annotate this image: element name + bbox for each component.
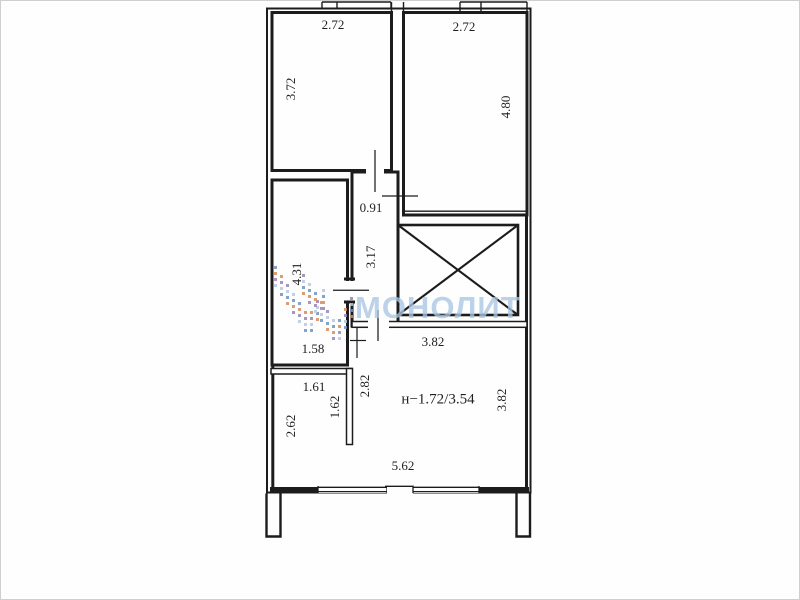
dimension-label: 1.62 (327, 396, 342, 419)
top-window-lines (322, 2, 527, 12)
dimension-label: 3.82 (494, 389, 509, 412)
dimension-label: 4.31 (289, 263, 304, 286)
balcony-walls (267, 494, 531, 537)
dimension-label: 2.62 (283, 415, 298, 438)
dimension-label: 3.82 (422, 334, 445, 349)
shaft-box (398, 225, 518, 315)
dimension-label: 0.91 (360, 200, 383, 215)
dimension-label: н−1.72/3.54 (401, 391, 475, 407)
dimension-label: 4.80 (498, 96, 513, 119)
dimension-label: 1.61 (303, 379, 326, 394)
dimension-label: 1.58 (302, 341, 325, 356)
dimension-label: 3.72 (283, 78, 298, 101)
dimension-label: 2.82 (357, 375, 372, 398)
dimension-label: 3.17 (363, 245, 378, 268)
bottom-wall-windows (270, 485, 529, 494)
floor-plan-drawing: 2.723.722.724.800.913.174.311.581.611.62… (0, 0, 800, 600)
dimension-label: 2.72 (453, 19, 476, 34)
dimension-label: 2.72 (322, 17, 345, 32)
floor-plan-image: 2.723.722.724.800.913.174.311.581.611.62… (0, 0, 800, 600)
dimension-label: 5.62 (392, 458, 415, 473)
room-left-narrow (272, 180, 348, 365)
